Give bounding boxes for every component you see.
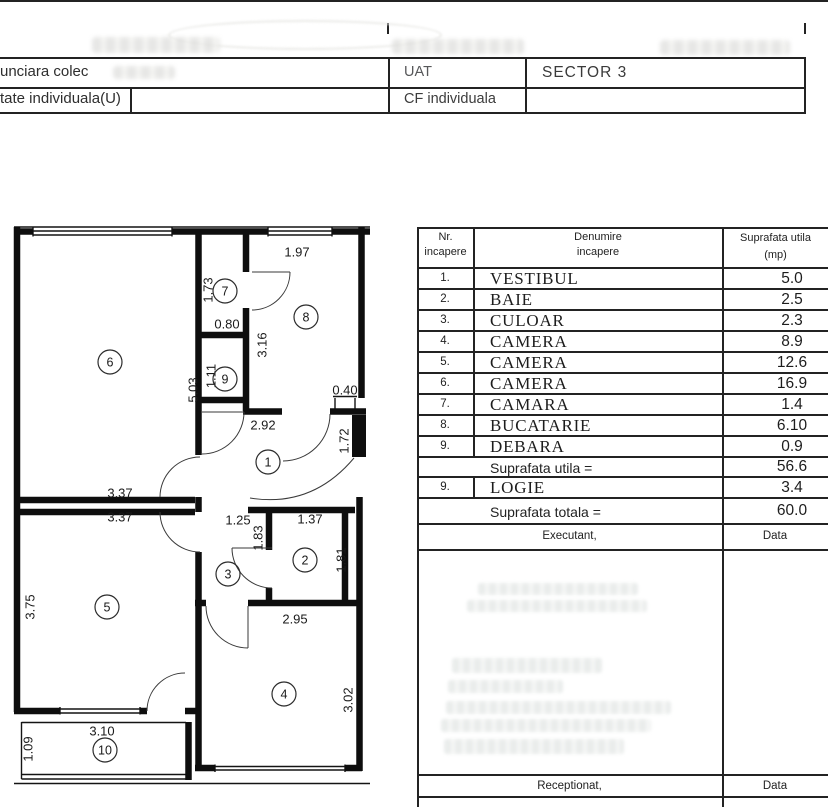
room-name: VESTIBUL bbox=[490, 268, 579, 289]
dimension-label: 3.10 bbox=[89, 724, 114, 739]
table-col-divider-1b bbox=[473, 476, 475, 498]
room-area: 12.6 bbox=[722, 352, 828, 373]
subtotal-label: Suprafata utila = bbox=[490, 459, 592, 477]
dimension-label: 1.25 bbox=[225, 513, 250, 528]
dimension-label: 1.72 bbox=[337, 428, 352, 453]
signature-mark bbox=[441, 719, 651, 732]
room-nr: 6. bbox=[417, 373, 473, 394]
room-number: 4 bbox=[281, 688, 288, 702]
dimension-label: 3.02 bbox=[341, 687, 356, 712]
room-nr: 1. bbox=[417, 268, 473, 289]
dimension-label: 5.03 bbox=[186, 377, 201, 402]
room-nr: 2. bbox=[417, 289, 473, 310]
dimension-label: 2.92 bbox=[250, 418, 275, 433]
dimension-label: 3.37 bbox=[107, 486, 132, 501]
signature-mark bbox=[444, 739, 624, 754]
table-line bbox=[417, 774, 828, 776]
dimension-label: 1.83 bbox=[251, 525, 266, 550]
col-header-mp: (mp) bbox=[723, 249, 828, 261]
room-area: 0.9 bbox=[722, 436, 828, 457]
room-name: CAMERA bbox=[490, 352, 568, 373]
dimension-label: 2.95 bbox=[282, 612, 307, 627]
dimension-label: 3.37 bbox=[107, 510, 132, 525]
executant-label: Executant, bbox=[417, 530, 722, 542]
total-label: Suprafata totala = bbox=[490, 503, 601, 521]
dimension-label: 3.75 bbox=[23, 594, 38, 619]
col-header-suprafata: Suprafata utila bbox=[723, 232, 828, 244]
dimension-label: 0.40 bbox=[332, 383, 357, 398]
col-header-nr-2: incapere bbox=[418, 246, 473, 258]
room-area: 1.4 bbox=[722, 394, 828, 415]
room-number: 7 bbox=[222, 285, 229, 299]
dimension-label: 0.80 bbox=[214, 317, 239, 332]
room-name: BAIE bbox=[490, 289, 533, 310]
room-nr: 7. bbox=[417, 394, 473, 415]
logie-name: LOGIE bbox=[490, 477, 545, 498]
room-number: 8 bbox=[303, 311, 310, 325]
dimension-label: 1.81 bbox=[334, 547, 349, 572]
room-nr: 3. bbox=[417, 310, 473, 331]
room-number: 5 bbox=[104, 601, 111, 615]
room-area: 5.0 bbox=[722, 268, 828, 289]
signature-mark bbox=[448, 680, 563, 693]
dimension-label: 1.37 bbox=[297, 512, 322, 527]
room-area: 8.9 bbox=[722, 331, 828, 352]
receptionat-data-label: Data bbox=[722, 780, 828, 792]
door-arcs bbox=[147, 272, 354, 711]
room-name: CAMERA bbox=[490, 373, 568, 394]
room-number: 6 bbox=[107, 356, 114, 370]
table-line bbox=[417, 796, 828, 798]
signature-mark bbox=[446, 701, 671, 714]
dimension-label: 1.97 bbox=[284, 245, 309, 260]
signature-mark bbox=[467, 600, 647, 612]
room-nr: 9. bbox=[417, 436, 473, 457]
col-header-denumire: Denumire bbox=[474, 231, 722, 243]
floor-plan: 1.971.730.803.161.115.030.402.921.723.37… bbox=[0, 0, 828, 807]
dimension-label: 1.11 bbox=[204, 364, 219, 388]
room-number: 2 bbox=[302, 554, 309, 568]
signature-mark bbox=[478, 583, 638, 595]
room-area: 16.9 bbox=[722, 373, 828, 394]
room-area: 6.10 bbox=[722, 415, 828, 436]
subtotal-value: 56.6 bbox=[722, 458, 828, 476]
dimension-label: 3.16 bbox=[255, 332, 270, 357]
room-nr: 5. bbox=[417, 352, 473, 373]
room-name: BUCATARIE bbox=[490, 415, 591, 436]
total-value: 60.0 bbox=[722, 502, 828, 520]
room-name: DEBARA bbox=[490, 436, 565, 457]
room-number: 1 bbox=[265, 456, 272, 470]
room-name: CAMERA bbox=[490, 331, 568, 352]
table-line bbox=[417, 227, 828, 229]
room-area: 2.5 bbox=[722, 289, 828, 310]
room-nr: 8. bbox=[417, 415, 473, 436]
col-header-denumire-2: incapere bbox=[474, 246, 722, 258]
table-line bbox=[417, 549, 828, 551]
dimension-label: 1.09 bbox=[21, 736, 36, 761]
walls bbox=[14, 227, 370, 780]
receptionat-label: Receptionat, bbox=[417, 780, 722, 792]
scanned-cadastral-document: unciara colec UAT SECTOR 3 tate individu… bbox=[0, 0, 828, 807]
col-header-nr: Nr. bbox=[418, 231, 473, 243]
room-number: 10 bbox=[98, 744, 112, 758]
room-number: 9 bbox=[222, 373, 229, 387]
logie-nr: 9. bbox=[417, 477, 473, 498]
room-name: CAMARA bbox=[490, 394, 569, 415]
room-number: 3 bbox=[225, 568, 232, 582]
table-col-divider-1 bbox=[473, 227, 475, 457]
room-name: CULOAR bbox=[490, 310, 565, 331]
room-nr: 4. bbox=[417, 331, 473, 352]
room-area: 2.3 bbox=[722, 310, 828, 331]
table-line bbox=[417, 523, 828, 525]
executant-data-label: Data bbox=[722, 530, 828, 542]
signature-mark bbox=[452, 658, 602, 673]
logie-area: 3.4 bbox=[722, 477, 828, 498]
